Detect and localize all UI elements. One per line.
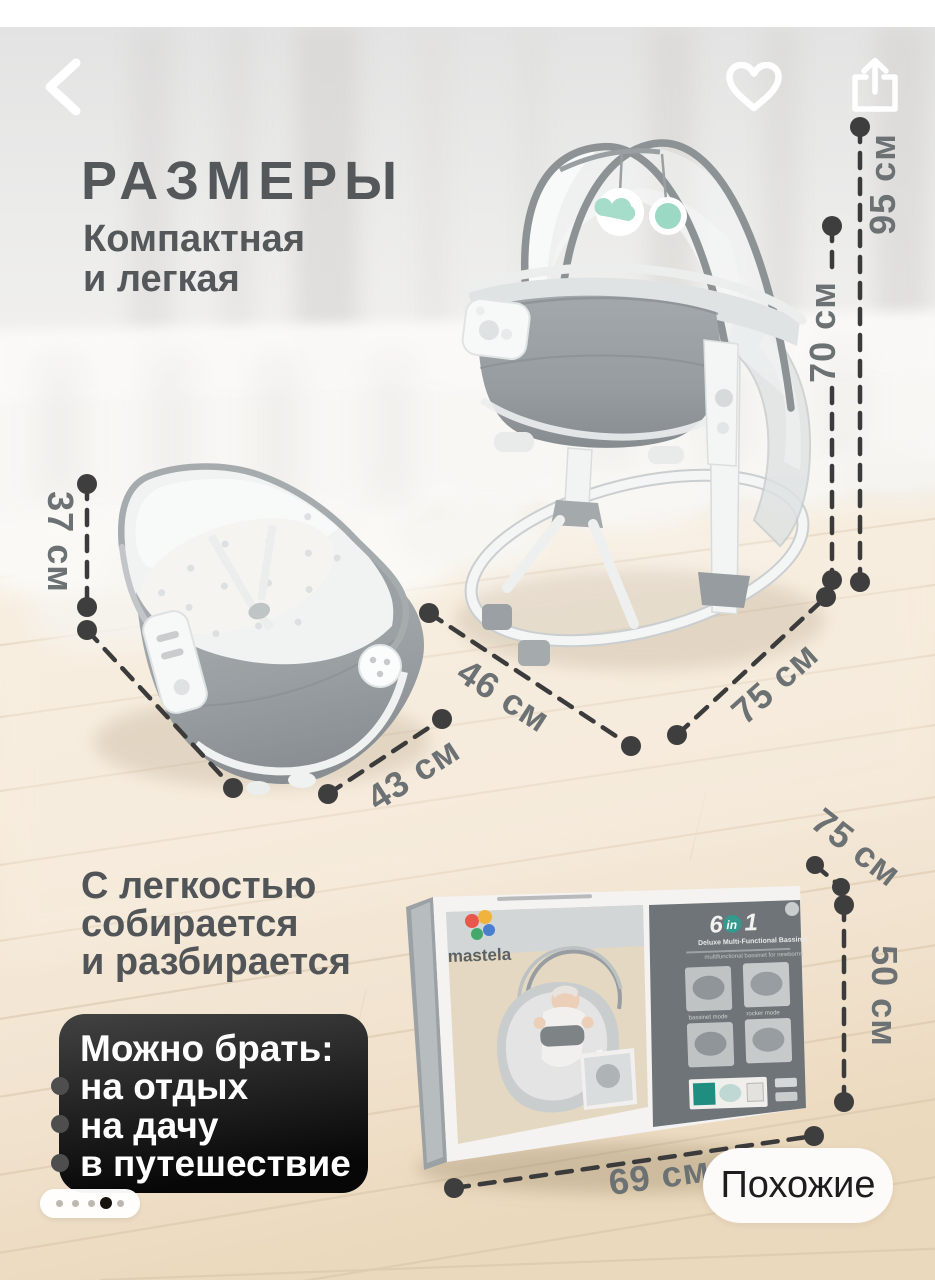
svg-text:mastela: mastela <box>447 945 511 966</box>
svg-text:37 см: 37 см <box>40 491 81 593</box>
svg-text:rocker mode: rocker mode <box>746 1010 780 1017</box>
svg-text:50 см: 50 см <box>864 945 905 1047</box>
svg-text:in: in <box>726 918 737 932</box>
svg-text:6: 6 <box>709 911 724 938</box>
svg-text:95 см: 95 см <box>862 133 903 235</box>
svg-text:70 см: 70 см <box>802 281 843 383</box>
svg-text:1: 1 <box>744 909 758 936</box>
svg-text:75 см: 75 см <box>804 800 909 895</box>
